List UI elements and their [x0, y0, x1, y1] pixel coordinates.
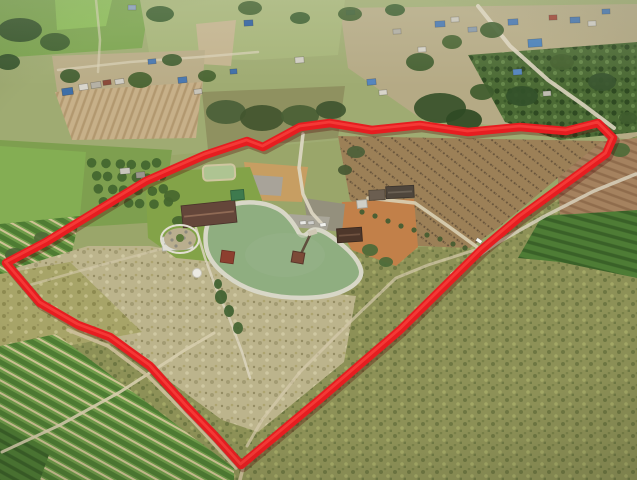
village-house — [468, 27, 477, 32]
village-house — [508, 19, 518, 26]
village-house — [418, 47, 426, 52]
village-house — [513, 69, 522, 76]
tree — [406, 53, 434, 71]
field-plow-field-left — [55, 82, 202, 140]
village-house — [115, 78, 125, 84]
village-house — [103, 79, 112, 85]
tree — [316, 101, 346, 119]
green-canopy — [231, 189, 245, 200]
tree — [470, 84, 494, 100]
tree — [442, 35, 462, 49]
tree — [215, 290, 227, 304]
tree — [385, 4, 405, 16]
village-house — [543, 91, 551, 97]
orchard-tree — [152, 158, 162, 168]
village-house — [588, 21, 596, 26]
village-house — [379, 90, 387, 96]
tree — [619, 112, 637, 124]
tree — [224, 305, 234, 317]
village-house — [367, 79, 376, 86]
orchard-tree — [92, 171, 102, 181]
east-sala — [337, 227, 363, 243]
tree — [238, 1, 262, 15]
tree — [128, 72, 152, 88]
red-hut — [220, 250, 235, 264]
tree — [146, 6, 174, 22]
scene-svg — [0, 0, 637, 480]
tree — [338, 7, 362, 21]
field-left-bright-field — [0, 146, 86, 224]
pond-pavilion — [291, 251, 305, 264]
village-house — [128, 5, 136, 10]
garden-bush — [176, 234, 184, 242]
tree — [290, 12, 310, 24]
village-house — [295, 57, 304, 64]
garden-stone — [168, 231, 171, 234]
field-top-left-bright — [55, 0, 112, 30]
road-bush — [450, 241, 455, 246]
village-house — [570, 17, 580, 23]
tree — [214, 279, 222, 289]
village-house — [148, 59, 156, 65]
village-house — [393, 29, 401, 34]
road-bush — [424, 232, 429, 237]
garden-stone — [188, 241, 191, 244]
garden-stone — [174, 244, 177, 247]
village-house — [451, 17, 459, 22]
road-bush — [411, 227, 416, 232]
orchard-tree — [87, 158, 97, 168]
tree — [480, 22, 504, 38]
orchard-tree — [103, 172, 113, 182]
white-umbrella — [193, 269, 202, 278]
aerial-photo — [0, 0, 637, 480]
vehicle — [308, 221, 314, 225]
road-bush — [462, 245, 467, 250]
village-house — [230, 69, 237, 74]
vehicle — [300, 221, 306, 225]
road-bush — [398, 223, 403, 228]
tree — [233, 322, 243, 334]
orchard-tree — [94, 184, 104, 194]
village-house — [435, 21, 445, 28]
village-house — [91, 81, 102, 88]
tree — [164, 190, 180, 202]
tree — [362, 244, 378, 256]
tree — [347, 146, 365, 158]
tree — [588, 73, 616, 91]
village-house — [549, 15, 557, 20]
tree — [162, 54, 182, 66]
tree — [379, 257, 393, 267]
tree — [206, 100, 246, 124]
village-house — [62, 87, 74, 95]
road-bush — [359, 209, 364, 214]
orchard-tree — [149, 199, 159, 209]
village-house — [528, 39, 543, 48]
tree — [60, 69, 80, 83]
small-pond — [203, 164, 236, 181]
farm-shed — [369, 190, 386, 201]
tree — [198, 70, 216, 82]
village-house — [194, 89, 202, 95]
tree — [338, 165, 352, 175]
long-barn — [386, 185, 415, 198]
orchard-tree — [116, 159, 126, 169]
orchard-tree — [108, 185, 118, 195]
tree — [240, 105, 284, 131]
road-bush — [385, 218, 390, 223]
village-house — [120, 168, 130, 175]
tree — [0, 18, 42, 42]
village-house — [244, 20, 253, 26]
village-house — [178, 77, 188, 84]
orchard-tree — [135, 199, 145, 209]
vehicle — [320, 223, 326, 227]
village-house — [602, 9, 610, 14]
tree — [550, 54, 574, 70]
garden-stone — [184, 230, 187, 233]
road-bush — [372, 213, 377, 218]
village-house — [79, 83, 89, 90]
orchard-tree — [101, 159, 111, 169]
orchard-tree — [141, 160, 151, 170]
road-bush — [437, 236, 442, 241]
white-outbuilding — [357, 199, 368, 208]
pond-highlight — [245, 233, 325, 277]
tree — [506, 86, 538, 106]
tree — [40, 33, 70, 51]
garden-stone — [170, 238, 173, 241]
